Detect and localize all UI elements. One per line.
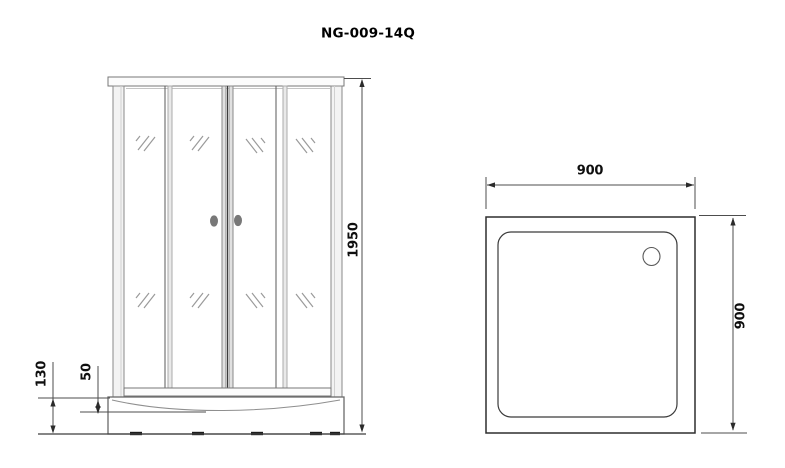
reflection-icon [246,138,265,153]
reflection-icon [296,138,315,153]
arrow-up-icon [730,218,735,226]
right-door-stile [229,86,233,388]
arrow-left-icon [487,182,495,187]
tray-outline [486,217,695,433]
left-divider-profile [168,86,172,388]
dim-label-tray-depth: 900 [735,303,748,330]
right-divider-profile [283,86,287,388]
arrow-down-icon [50,426,55,434]
drawing-canvas: NG-009-14Q 1950 130 50 900 900 [0,0,785,468]
arrow-down-icon [95,406,100,414]
left-door-handle [210,215,218,226]
top-view-dimensions [486,177,747,433]
front-view [38,77,366,435]
model-title: NG-009-14Q [321,27,415,41]
dim-label-tray-height: 130 [36,361,49,388]
top-view [486,217,695,433]
left-door-stile [222,86,226,388]
top-rail [108,77,344,86]
reflection-icon [190,293,209,308]
arrow-up-icon [50,399,55,407]
tray-front [108,397,344,434]
dim-label-basin-depth: 50 [81,363,94,381]
dim-label-tray-width: 900 [577,165,604,178]
reflection-icon [136,293,155,308]
dim-label-total-height: 1950 [348,222,361,257]
arrow-up-icon [359,79,364,87]
right-frame-profile [331,86,342,397]
reflection-icon [246,293,265,308]
drain-icon [643,248,660,266]
arrow-right-icon [686,182,694,187]
arrow-down-icon [359,425,364,433]
right-door-handle [234,215,242,226]
reflection-icon [296,293,315,308]
technical-drawing [0,0,785,468]
reflection-icon [190,136,209,151]
left-frame-profile [113,86,124,397]
arrow-down-icon [730,423,735,431]
reflection-icon [136,136,155,151]
bottom-rail [124,388,331,396]
